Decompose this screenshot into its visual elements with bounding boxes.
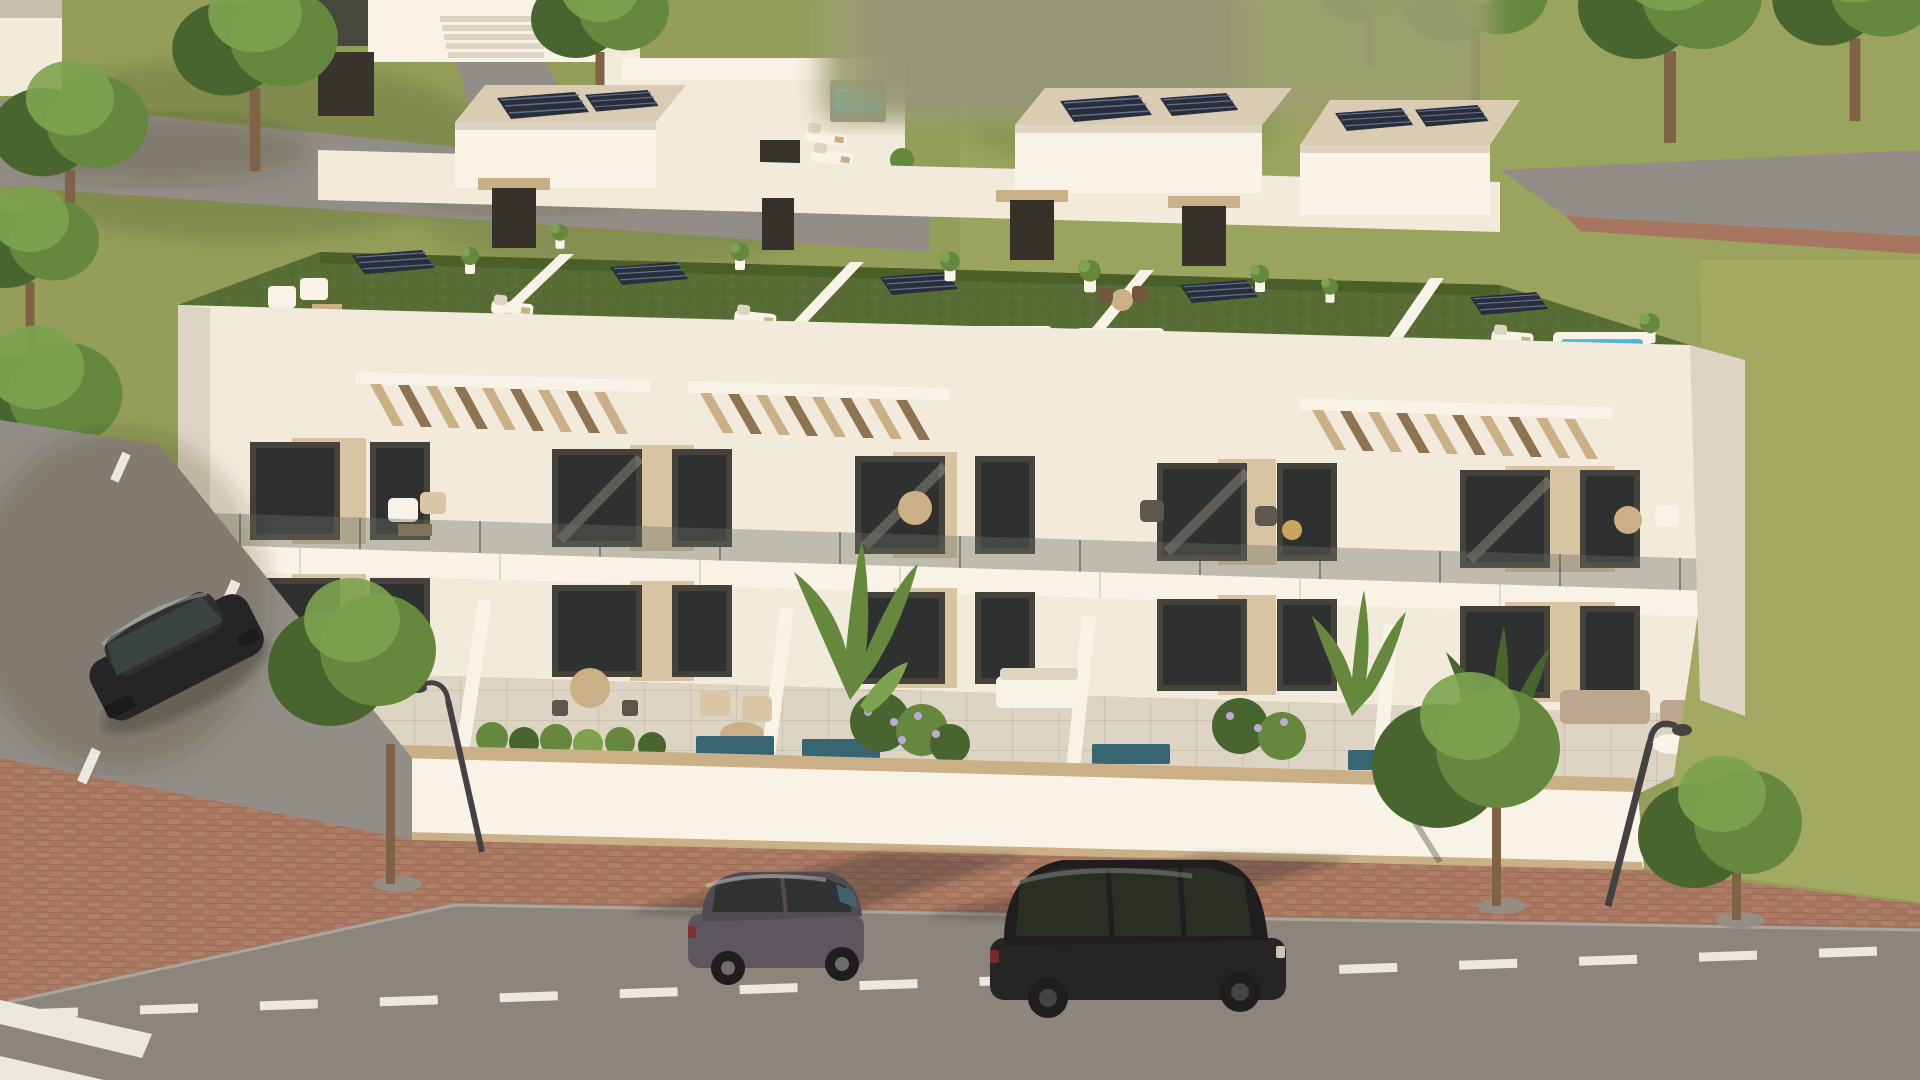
sunlight-overlay xyxy=(0,0,1920,1080)
render-canvas xyxy=(0,0,1920,1080)
architectural-render xyxy=(0,0,1920,1080)
